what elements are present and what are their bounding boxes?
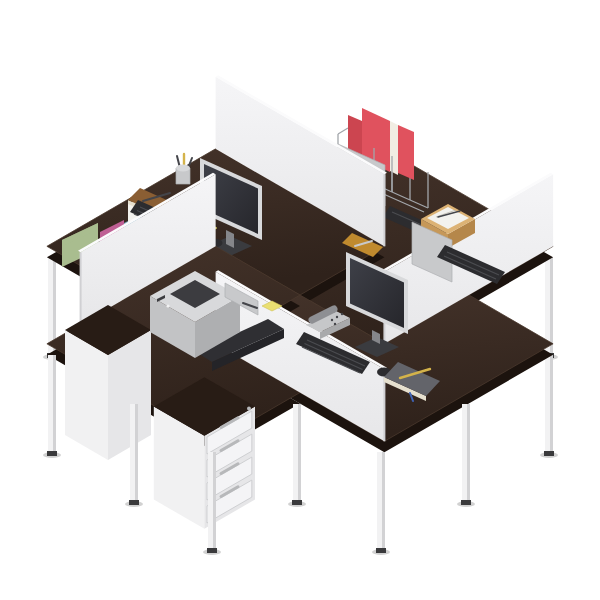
pedestal-plain	[65, 305, 151, 460]
binder-pages	[390, 121, 398, 175]
red-binder	[398, 125, 414, 180]
office-workstation-render	[0, 0, 600, 600]
desk-leg	[43, 355, 61, 458]
desk-leg	[372, 452, 390, 555]
pen-cup	[176, 154, 192, 184]
desk-leg	[540, 355, 558, 458]
isometric-scene	[0, 0, 600, 600]
drawer-lock	[247, 407, 251, 411]
desk-leg	[288, 404, 306, 507]
pedestal-drawers	[154, 377, 255, 529]
desk-leg	[457, 404, 475, 507]
printer-logo	[166, 304, 169, 307]
